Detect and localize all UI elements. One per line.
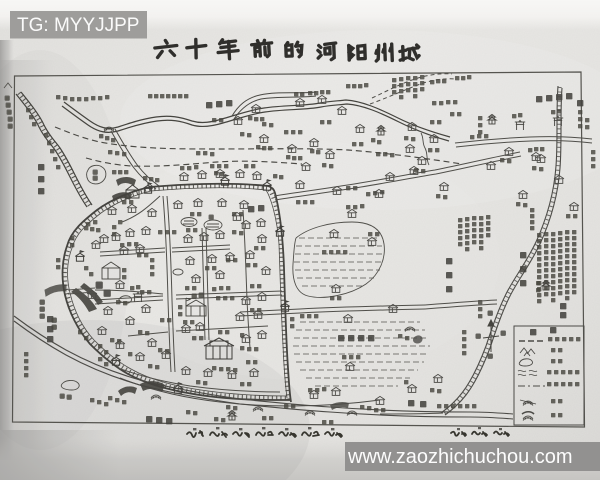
svg-text:TG: MYYJJPP: TG: MYYJJPP — [17, 15, 139, 36]
svg-text:www.zaozhichuchou.com: www.zaozhichuchou.com — [347, 446, 573, 468]
